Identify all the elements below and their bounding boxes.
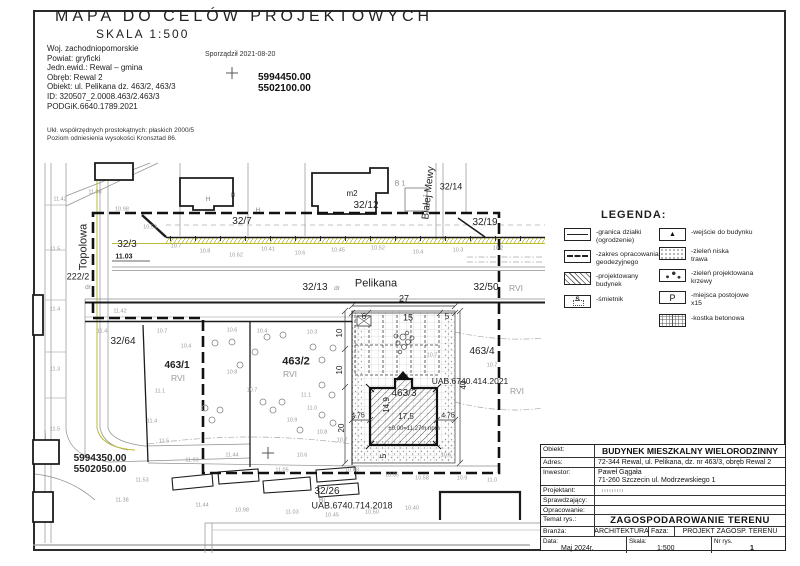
faza-label: Faza: [649,527,675,536]
header-info-line: Woj. zachodniopomorskie [47,44,176,54]
header-info-line: ID: 320507_2.0008.463/2.463/3 [47,92,176,102]
legend-item: -zieleń projektowana krzewy [659,269,787,285]
grid-coordinates-top: 5994450.00 5502100.00 [258,72,311,94]
data-cell: Data: Maj 2024r. [541,537,627,553]
legend-label: -projektowany budynek [596,272,660,288]
header-info-line: Jedn.ewid.: Rewal – gmina [47,63,176,73]
entry-symbol-icon: ▲ [659,228,686,241]
titleblock-row-data: Data: Maj 2024r. Skala: 1:500 Nr rys. 1 [541,537,785,553]
adres-label: Adres: [541,458,595,467]
map-info-block: Woj. zachodniopomorskiePowiat: gryfickiJ… [47,44,176,111]
title-block: Obiekt: BUDYNEK MIESZKALNY WIELORODZINNY… [540,444,786,551]
shrub-symbol-icon [659,269,686,282]
faza-value: PROJEKT ZAGOSP. TERENU [675,527,785,536]
map-scale: SKALA 1:500 [96,27,189,41]
dash-symbol-icon [564,250,591,263]
legend-label: -zieleń projektowana krzewy [691,269,753,285]
legend-item: -projektowany budynek [564,272,660,288]
branza-label: Branża: [541,527,595,536]
legend-column-right: ▲-wejście do budynku-zieleń niska trawa-… [659,228,787,333]
titleblock-row-opracowanie: Opracowanie: [541,506,785,515]
nr-value: 1 [750,545,754,552]
datum-line: Poziom odniesienia wysokości Kronsztad 8… [47,135,194,143]
nr-cell: Nr rys. 1 [712,537,785,553]
hedge-strip [166,238,545,244]
data-label: Data: [543,538,624,545]
legend-label: -miejsca postojowe x15 [691,291,749,307]
sprawdzajacy-value [595,496,785,505]
inwestor-label: Inwestor: [541,468,595,485]
opracowanie-value [595,506,785,514]
projektant-value [595,486,785,495]
hatch-symbol-icon [564,272,591,285]
adres-value: 72-344 Rewal, ul. Pelikana, dz. nr 463/3… [595,458,785,467]
legend-item: P-miejsca postojowe x15 [659,291,787,307]
legend-label: -zieleń niska trawa [691,247,729,263]
opracowanie-label: Opracowanie: [541,506,595,514]
datum-line: Ukł. współrzędnych prostokątnych: płaski… [47,127,194,135]
projektant-signature [602,489,624,492]
prepared-date: Sporządził 2021-08-20 [205,51,275,58]
skala-value: 1:500 [657,545,675,552]
paving-symbol-icon [659,314,686,327]
datum-block: Ukł. współrzędnych prostokątnych: płaski… [47,127,194,143]
data-value: Maj 2024r. [561,545,594,552]
legend-item: -zakres opracowania geodezyjnego [564,250,660,266]
header-info-line: Obiekt: ul. Pelikana dz. 463/2, 463/3 [47,82,176,92]
legend-item: -granica działki (ogrodzenie) [564,228,660,244]
titleblock-row-branza: Branża: ARCHITEKTURA Faza: PROJEKT ZAGOS… [541,527,785,537]
titleblock-row-temat: Temat rys.: ZAGOSPODAROWANIE TERENU [541,515,785,527]
legend-label: -wejście do budynku [691,228,753,237]
legend-item: -kostka betonowa [659,314,787,327]
skala-cell: Skala: 1:500 [627,537,712,553]
nr-label: Nr rys. [714,538,783,545]
legend-label: -kostka betonowa [691,314,744,323]
titleblock-row-sprawdzajacy: Sprawdzający: [541,496,785,506]
branza-value: ARCHITEKTURA [595,527,649,536]
garages-row [172,467,359,497]
fence-symbol-icon [564,228,591,241]
legend-item: ▲-wejście do budynku [659,228,787,241]
legend-item: S-śmietnik [564,295,660,308]
outbuilding [405,188,427,211]
titleblock-row-adres: Adres: 72-344 Rewal, ul. Pelikana, dz. n… [541,458,785,468]
legend-item: -zieleń niska trawa [659,247,787,263]
street-lines [33,163,545,553]
projektant-label: Projektant: [541,486,595,495]
trees [202,332,336,433]
titleblock-row-projektant: Projektant: [541,486,785,496]
temat-value: ZAGOSPODAROWANIE TERENU [595,515,785,526]
sprawdzajacy-label: Sprawdzający: [541,496,595,505]
legend-column-left: -granica działki (ogrodzenie)-zakres opr… [564,228,660,314]
page-title: MAPA DO CELÓW PROJEKTOWYCH [55,8,433,26]
contour-lines [148,257,543,444]
inwestor-value: Paweł Gągała 71-260 Szczecin ul. Modrzew… [595,468,785,485]
bin-symbol-icon: S [564,295,591,308]
legend-label: -zakres opracowania geodezyjnego [596,250,659,266]
legend-title: LEGENDA: [601,209,666,221]
header-info-line: Powiat: gryficki [47,54,176,64]
parking-symbol-icon: P [659,291,686,304]
skala-label: Skala: [629,538,709,545]
grass-symbol-icon [659,247,686,260]
titleblock-row-obiekt: Obiekt: BUDYNEK MIESZKALNY WIELORODZINNY [541,445,785,458]
header-info-line: Obręb: Rewal 2 [47,73,176,83]
obiekt-label: Obiekt: [541,445,595,457]
legend-label: -granica działki (ogrodzenie) [596,228,641,244]
titleblock-row-inwestor: Inwestor: Paweł Gągała 71-260 Szczecin u… [541,468,785,486]
header-info-line: PODGiK.6640.1789.2021 [47,102,176,112]
coordinate-northing: 5994450.00 [258,72,311,83]
temat-label: Temat rys.: [541,515,595,526]
coordinate-easting: 5502100.00 [258,83,311,94]
legend-label: -śmietnik [596,295,623,304]
obiekt-value: BUDYNEK MIESZKALNY WIELORODZINNY [595,445,785,457]
